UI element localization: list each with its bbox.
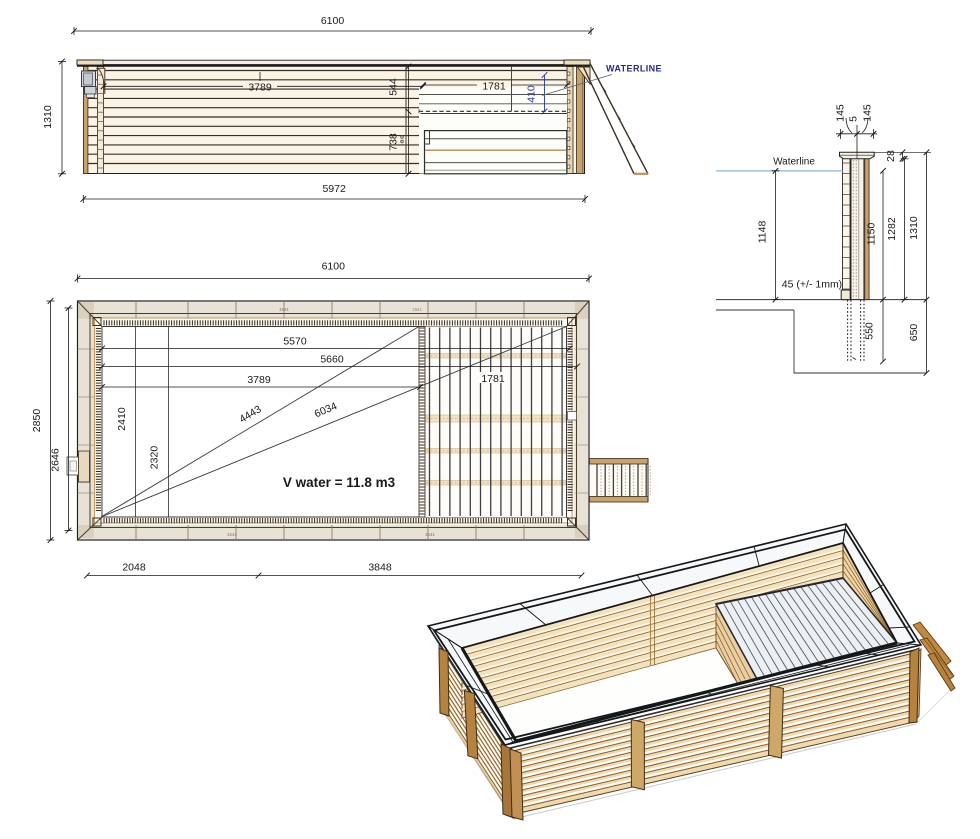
svg-text:738: 738 [388,133,400,151]
svg-text:V water = 11.8 m3: V water = 11.8 m3 [283,475,396,490]
svg-text:1282: 1282 [886,217,898,241]
svg-text:5: 5 [848,116,860,122]
svg-text:1781: 1781 [482,81,506,93]
svg-text:1781: 1781 [481,373,505,385]
svg-text:2320: 2320 [149,446,161,470]
svg-text:1148: 1148 [757,221,769,244]
svg-text:3789: 3789 [248,82,272,94]
svg-text:5660: 5660 [320,354,344,366]
svg-text:6100: 6100 [321,15,345,27]
svg-text:1310: 1310 [908,216,920,240]
svg-text:5570: 5570 [283,336,307,348]
svg-text:2048: 2048 [122,562,146,574]
svg-text:2646: 2646 [50,448,62,472]
svg-text:Waterline: Waterline [773,157,815,168]
svg-text:410: 410 [526,85,538,103]
svg-text:2410: 2410 [116,407,128,431]
svg-text:3789: 3789 [247,374,271,386]
svg-text:145: 145 [835,104,847,122]
svg-text:550: 550 [864,322,876,340]
svg-text:2850: 2850 [31,409,43,433]
svg-text:145: 145 [862,104,874,122]
svg-text:3848: 3848 [368,562,392,574]
svg-text:1310: 1310 [42,105,54,129]
svg-text:1541: 1541 [425,532,436,537]
svg-text:45 (+/- 1mm): 45 (+/- 1mm) [782,279,842,291]
svg-text:5972: 5972 [322,183,346,195]
svg-text:WATERLINE: WATERLINE [606,64,662,74]
svg-text:1150: 1150 [866,223,878,246]
svg-text:28: 28 [885,150,897,162]
svg-text:650: 650 [908,324,920,342]
svg-text:544: 544 [388,78,400,96]
svg-text:1541: 1541 [412,307,423,312]
svg-text:6100: 6100 [322,261,346,273]
